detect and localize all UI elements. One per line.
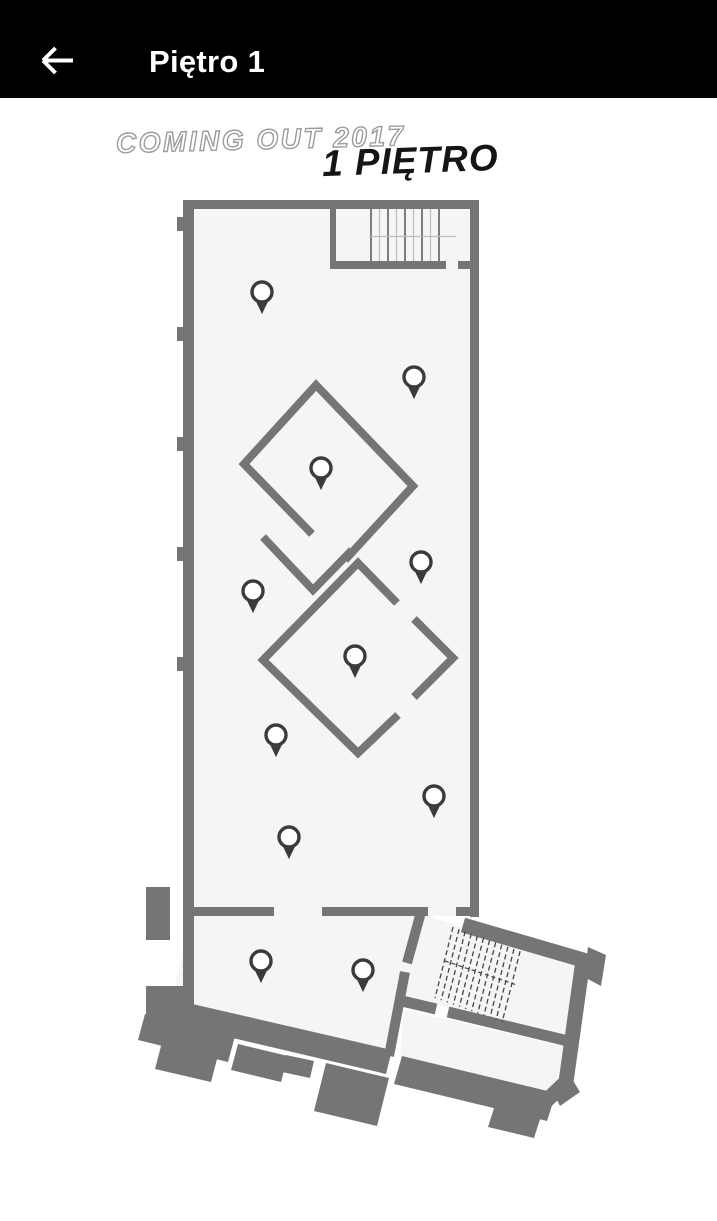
floorplan-map xyxy=(0,98,717,1221)
floor-label: 1 PIĘTRO xyxy=(321,137,499,185)
arrow-left-icon xyxy=(39,42,76,82)
back-button[interactable] xyxy=(37,42,77,82)
floor-fills xyxy=(170,209,578,1094)
floorplan-viewport[interactable]: COMING OUT 2017 1 PIĘTRO xyxy=(0,98,717,1221)
page-title: Piętro 1 xyxy=(149,44,265,80)
app-bar: Piętro 1 xyxy=(0,0,717,98)
